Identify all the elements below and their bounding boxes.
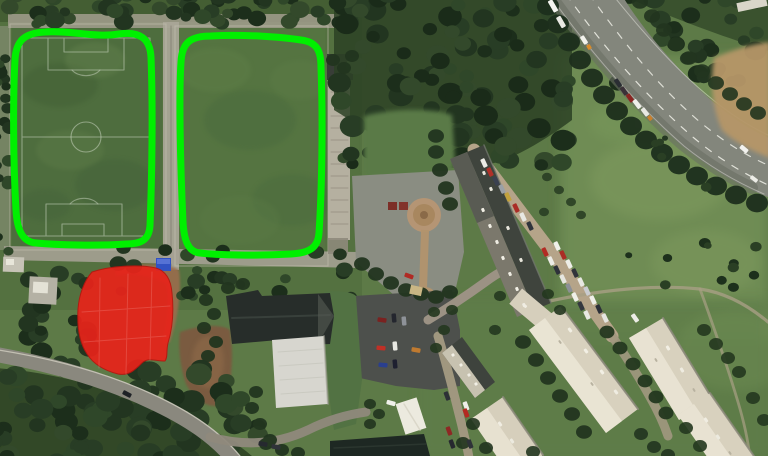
tree [721,352,735,364]
tree [72,426,89,440]
tree [489,325,501,335]
tree [659,407,674,420]
tree [333,249,347,261]
tree [14,403,33,419]
tree [722,87,738,101]
tree [638,375,653,388]
tree [230,414,251,432]
tree [197,322,211,334]
tree [397,47,411,59]
tree [1,83,10,91]
tree [428,129,444,143]
tree [446,91,461,104]
tree [158,244,172,256]
tree [430,343,442,353]
tree [355,40,372,54]
tree [527,118,551,138]
tree [494,137,517,156]
blue-container-top [157,259,170,264]
tree [494,27,512,42]
tree [454,37,471,51]
tree [423,23,437,35]
tree [566,198,576,207]
tree [199,285,210,294]
tree [497,98,521,118]
tree [337,62,351,74]
tree [540,371,556,385]
tree [725,186,747,205]
tree [749,271,759,280]
tree [626,358,641,371]
scene-root [0,0,768,456]
tree [181,13,192,22]
tree [554,305,566,315]
tree [704,242,712,249]
tree [694,64,710,78]
tree [194,9,211,24]
tree [201,350,215,362]
tree [30,399,54,419]
tree [515,335,531,349]
tree [581,69,603,88]
tree [600,326,615,339]
tree [749,27,764,39]
tree [290,1,310,18]
tree [728,283,739,292]
tree [686,167,708,186]
field-light [179,48,251,92]
tree [107,4,124,18]
tree [535,159,549,170]
tree [681,51,697,65]
sports-hall-roof [272,336,328,408]
tree [576,211,586,220]
tree [328,73,351,93]
tree [606,102,628,121]
tree [697,324,711,336]
tree [326,54,340,66]
tree [432,163,448,177]
tree [209,336,223,348]
tree [551,130,576,151]
tree [352,4,369,18]
tree [249,386,263,398]
vehicle [392,341,397,350]
tree [576,425,592,439]
tree [442,285,458,299]
tree [166,6,183,20]
tree [649,391,664,404]
tree [724,14,737,25]
tree [539,208,549,217]
tree [620,117,642,136]
tree [508,76,528,93]
vehicle [392,359,397,368]
tree [366,31,379,42]
tree [345,50,359,62]
tree [470,89,491,107]
tree [199,294,213,306]
tree [494,291,506,301]
field-shade [19,189,71,221]
tree [442,197,458,211]
vehicle [391,313,396,322]
tree [477,45,492,57]
tree [428,145,444,159]
tree [539,33,558,50]
tree [54,425,72,441]
field-shade [204,90,296,150]
tree [679,422,693,434]
tree [336,263,353,277]
tree [701,182,712,191]
tree [460,81,474,93]
tree [625,252,632,258]
tree [383,276,399,290]
tree [551,154,571,171]
tree [364,399,376,409]
tree [564,407,580,421]
tree [364,419,376,429]
playground-equipment [399,202,408,210]
tree [542,173,552,182]
tree [554,186,564,195]
tree [3,247,13,256]
tree [458,108,474,122]
tree [459,70,474,82]
tree [709,338,723,350]
tree [29,418,45,432]
tree [688,41,702,52]
tree [526,51,547,68]
tree [186,363,212,385]
tree [131,425,150,442]
tree [73,441,88,454]
club-building-west-roof [33,282,49,294]
tree [736,97,752,111]
tree [732,366,746,378]
tree [253,418,267,430]
tree [280,274,291,283]
tree [445,25,460,38]
tree [181,286,196,299]
tree [473,9,494,27]
tree [466,418,480,430]
tree [400,77,421,95]
tree [35,326,47,336]
vehicle [376,345,385,350]
tree [368,267,384,281]
tree [634,428,648,440]
tree [428,290,444,304]
tree [152,2,168,16]
tree [438,181,454,195]
tree [534,19,549,32]
tree [354,257,370,271]
tree [479,442,493,454]
tree [569,51,591,70]
tree [552,389,568,403]
tree [708,76,724,90]
tree [222,9,233,18]
tree [656,23,672,37]
tree [663,254,672,262]
tree [207,308,221,320]
tree [554,91,573,107]
tree [528,353,544,367]
small-building-west-roof [6,259,14,265]
tree [192,266,202,275]
tree [668,37,684,51]
tree [389,63,404,75]
playground-equipment [388,202,397,210]
tree [331,92,352,110]
tree [746,194,768,213]
tree [311,6,325,18]
tree [693,440,707,452]
tree [542,289,554,299]
tree [1,0,19,14]
tree [681,7,700,23]
tree [342,147,359,162]
tree [340,115,366,137]
tree [750,242,761,252]
tree [236,278,250,290]
annotation-red-area [78,266,173,375]
water-tower-center [420,211,428,219]
tree [662,136,668,141]
tree [510,39,524,51]
tree [9,388,26,402]
tree [746,392,760,404]
tree [668,156,690,175]
tree [431,53,450,69]
tree [335,14,359,34]
tree [117,442,135,456]
tree [660,280,671,289]
tree [45,12,65,29]
tree [373,409,385,419]
tree [248,11,266,27]
tree [750,106,766,120]
vehicle [378,362,387,367]
satellite-image [0,0,768,456]
tree [613,342,628,355]
tree [644,9,660,23]
tree [647,441,661,453]
tree [245,402,259,414]
tree [428,307,440,317]
tree [728,263,739,273]
tree [593,86,615,105]
tree [717,276,727,285]
tree [221,282,235,294]
vehicle [401,316,406,325]
tree [657,153,666,161]
tree [0,94,11,103]
field-light [200,196,280,244]
tree [446,305,458,315]
tree [558,33,580,52]
tree [438,325,450,335]
aerial-map-canvas [0,0,768,456]
tree [474,105,498,125]
